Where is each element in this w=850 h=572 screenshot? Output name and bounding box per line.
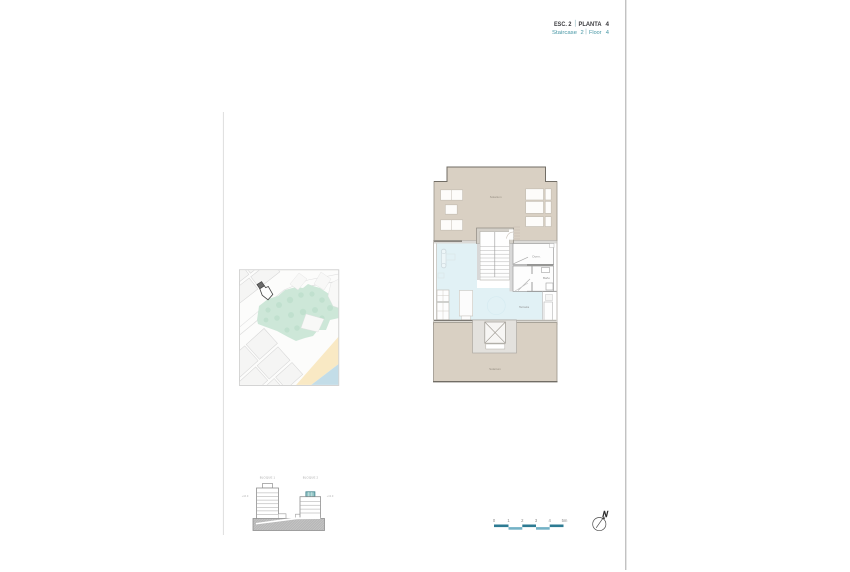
svg-text:PLANTA: PLANTA — [579, 21, 602, 28]
svg-text:Solarium: Solarium — [490, 195, 502, 199]
svg-text:5m: 5m — [562, 518, 568, 523]
svg-text:BLOQUE 1: BLOQUE 1 — [260, 475, 276, 479]
svg-text:ESC. 2: ESC. 2 — [554, 21, 572, 28]
svg-text:2: 2 — [581, 30, 584, 36]
svg-text:Dorm.: Dorm. — [532, 255, 540, 259]
svg-text:Staircase: Staircase — [552, 30, 577, 36]
svg-text:Baño: Baño — [543, 276, 550, 280]
svg-text:+13.9: +13.9 — [327, 494, 334, 498]
svg-text:Terraza: Terraza — [519, 305, 529, 309]
svg-text:Solarium: Solarium — [489, 367, 501, 371]
svg-text:+16.9: +16.9 — [242, 494, 249, 498]
svg-text:Floor: Floor — [589, 30, 602, 36]
svg-text:BLOQUE 2: BLOQUE 2 — [303, 475, 319, 479]
svg-text:4: 4 — [606, 21, 610, 28]
